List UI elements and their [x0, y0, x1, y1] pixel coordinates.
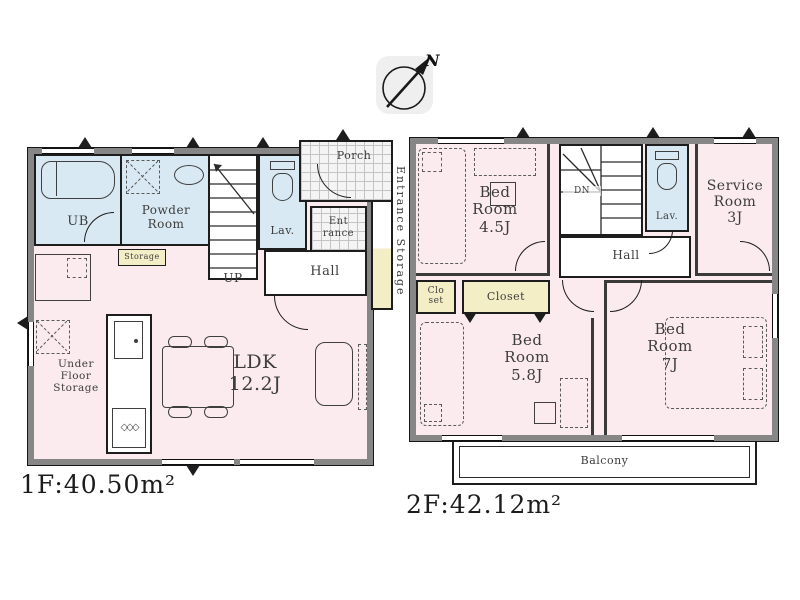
window	[714, 138, 756, 144]
door-arc	[317, 164, 351, 198]
closet-small-label: Clo set	[418, 286, 454, 307]
vent-marker	[646, 127, 660, 138]
toilet-tank-icon	[270, 161, 295, 170]
window	[42, 148, 94, 154]
room-bedroom-58: Bed Room 5.8J	[416, 318, 594, 435]
kitchen-counter: ◇◇◇	[106, 314, 152, 454]
stairs-icon	[210, 156, 256, 278]
room-ub: UB	[34, 154, 122, 246]
balcony: Balcony	[452, 439, 757, 485]
chair	[204, 336, 228, 348]
chair	[168, 406, 192, 418]
room-bedroom-45: Bed Room 4.5J	[416, 144, 550, 276]
chair	[204, 406, 228, 418]
room-storage: Storage	[118, 249, 166, 266]
window	[622, 435, 714, 441]
powder-room-label: Powder Room	[122, 204, 210, 232]
bedroom-58-label: Bed Room 5.8J	[472, 332, 582, 384]
balcony-label: Balcony	[454, 455, 755, 468]
hall-1f-label: Hall	[290, 265, 360, 280]
vent-marker	[17, 316, 28, 330]
closet-door-marker	[533, 312, 547, 323]
double-bed	[665, 317, 767, 409]
under-floor-storage-label: Under Floor Storage	[36, 358, 116, 394]
closet-label: Closet	[464, 291, 548, 304]
toilet-tank-icon	[655, 151, 679, 160]
pillow	[424, 404, 442, 422]
stairs-down: DN	[559, 144, 643, 236]
room-hall-2f: Hall	[559, 236, 691, 278]
service-room-label: Service Room 3J	[698, 178, 772, 226]
door-arc	[274, 296, 308, 330]
window	[772, 294, 778, 338]
window	[132, 148, 174, 154]
vent-marker	[256, 137, 270, 148]
porch-label: Porch	[319, 150, 389, 163]
sink-icon	[174, 165, 204, 185]
compass: N	[374, 44, 440, 122]
window	[240, 459, 314, 465]
vent-marker	[516, 127, 530, 138]
bed	[420, 322, 464, 426]
fridge-handle	[134, 339, 138, 343]
dining-table	[162, 346, 234, 408]
desk	[534, 402, 556, 424]
pillow	[743, 326, 763, 358]
room-service: Service Room 3J	[695, 144, 772, 276]
door-arc	[515, 241, 545, 271]
tv-board	[358, 344, 367, 410]
compass-north-label: N	[425, 52, 440, 70]
room-powder: Powder Room	[120, 154, 212, 246]
pillow	[422, 152, 442, 172]
vent-marker	[336, 129, 350, 140]
up-label: UP	[206, 272, 260, 286]
sofa	[315, 342, 353, 406]
bathtub-divider	[56, 162, 57, 196]
window	[442, 435, 502, 441]
toilet-icon	[272, 173, 293, 201]
room-lav-2f: Lav.	[645, 144, 689, 232]
vent-marker	[742, 127, 756, 138]
floor2-area-label: 2F:42.12m²	[406, 490, 562, 519]
bedroom-45-label: Bed Room 4.5J	[450, 184, 540, 236]
closet-area	[560, 378, 588, 428]
washer-icon	[126, 160, 160, 194]
room-closet: Closet	[462, 280, 550, 314]
room-entrance: Ent rance	[310, 206, 367, 252]
door-arc	[740, 241, 770, 271]
window	[438, 138, 504, 144]
room-entrance-storage	[371, 200, 393, 310]
closet-door-marker	[463, 312, 477, 323]
door-arc	[562, 280, 594, 312]
pillow	[743, 368, 763, 400]
lav-2f-label: Lav.	[647, 211, 687, 223]
entrance-label: Ent rance	[312, 216, 365, 239]
storage-label: Storage	[119, 252, 165, 261]
lav-1f-label: Lav.	[260, 225, 305, 238]
vent-marker	[186, 137, 200, 148]
stairs-up	[208, 154, 258, 280]
chair	[168, 336, 192, 348]
vent-marker	[186, 465, 200, 476]
room-closet-small: Clo set	[416, 280, 456, 314]
vent-marker	[78, 137, 92, 148]
closet-area	[474, 148, 536, 176]
toilet-icon	[657, 163, 677, 190]
fridge-icon	[114, 321, 143, 359]
under-floor-storage-icon	[36, 320, 70, 354]
entrance-storage-label: Entrance Storage	[394, 166, 407, 326]
bathtub-icon	[41, 161, 115, 199]
dn-label: DN	[563, 186, 601, 196]
cabinet-box	[67, 258, 87, 278]
room-hall-1f: Hall	[264, 250, 367, 296]
stove-icon: ◇◇◇	[112, 408, 146, 448]
room-porch: Porch	[299, 140, 393, 202]
window	[28, 322, 34, 366]
floor1-area-label: 1F:40.50m²	[20, 470, 176, 499]
floor2-plan: Bed Room 4.5J DN Hall Lav. Service Room …	[410, 138, 778, 441]
cabinet	[35, 254, 91, 301]
